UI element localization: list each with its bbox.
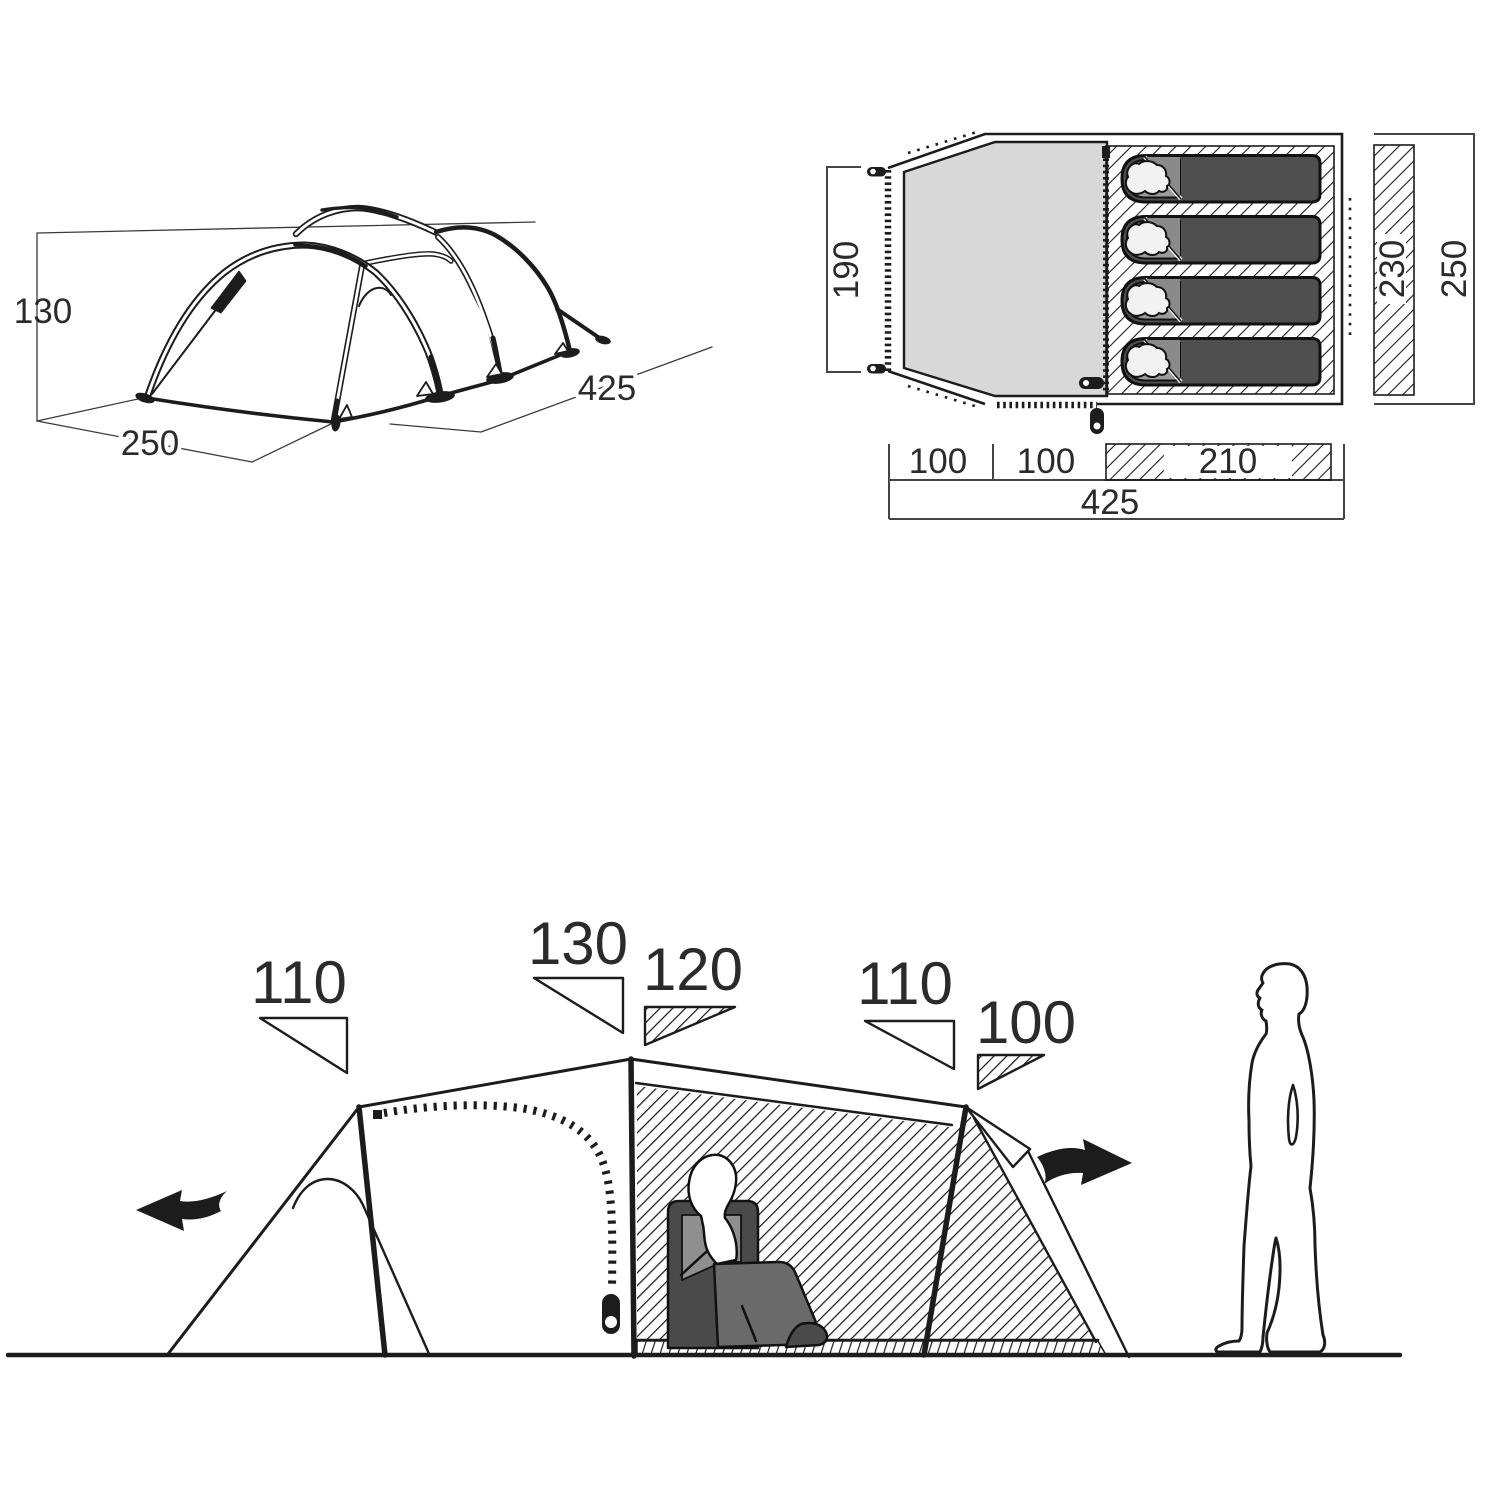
svg-text:110: 110	[251, 949, 347, 1016]
svg-text:120: 120	[643, 936, 743, 1003]
svg-text:130: 130	[14, 292, 72, 331]
svg-text:210: 210	[1199, 442, 1257, 481]
svg-text:130: 130	[528, 910, 628, 977]
svg-text:100: 100	[909, 442, 967, 481]
svg-text:100: 100	[1017, 442, 1075, 481]
svg-text:250: 250	[1435, 240, 1474, 298]
svg-text:100: 100	[976, 989, 1076, 1056]
svg-text:425: 425	[1081, 483, 1139, 522]
svg-text:110: 110	[857, 950, 953, 1017]
svg-text:425: 425	[578, 369, 636, 408]
svg-text:190: 190	[827, 241, 866, 299]
svg-text:250: 250	[121, 424, 179, 463]
svg-text:230: 230	[1373, 240, 1412, 298]
